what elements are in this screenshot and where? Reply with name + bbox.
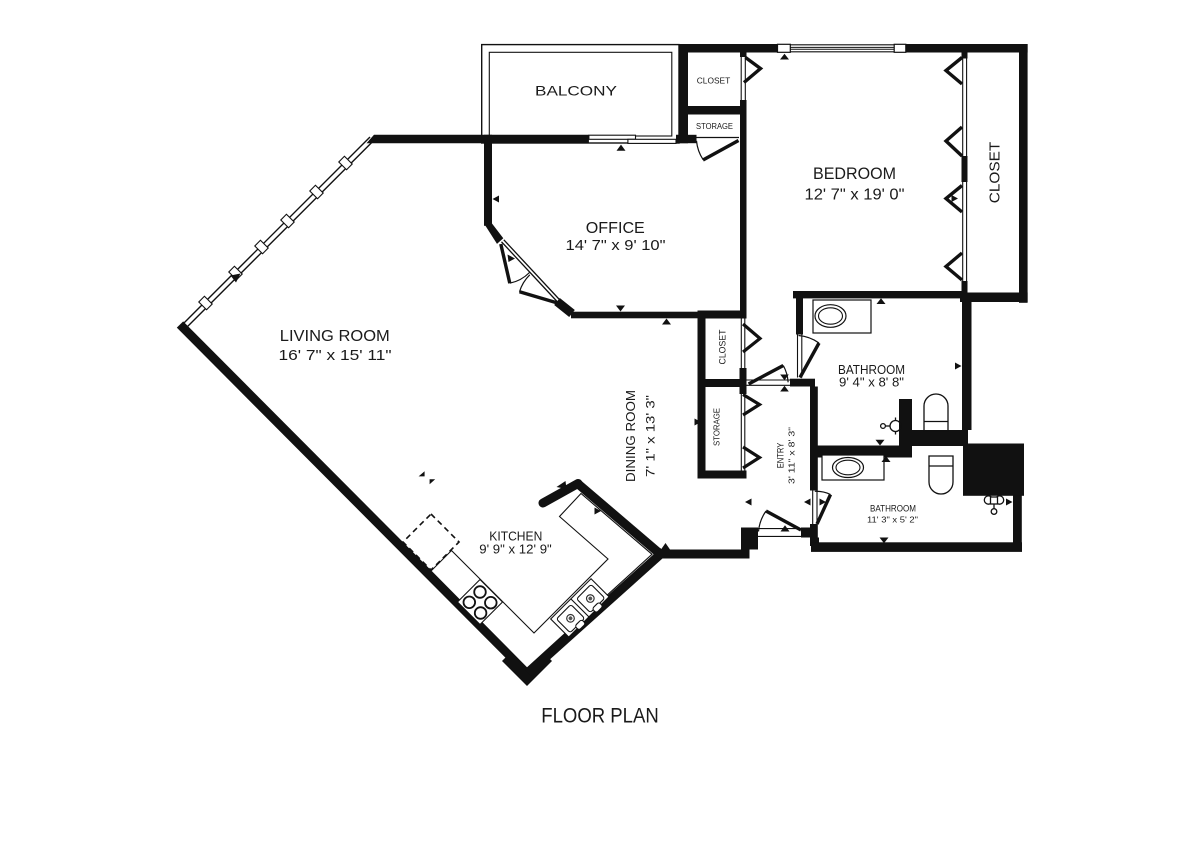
svg-text:3' 11" x 8' 3": 3' 11" x 8' 3" [787,427,797,484]
svg-text:16' 7" x 15' 11": 16' 7" x 15' 11" [279,347,392,364]
svg-text:BEDROOM: BEDROOM [813,165,896,183]
svg-text:OFFICE: OFFICE [586,220,645,237]
svg-text:14' 7" x 9' 10": 14' 7" x 9' 10" [566,237,666,254]
svg-text:9' 4" x 8' 8": 9' 4" x 8' 8" [839,376,904,390]
svg-text:11' 3" x 5' 2": 11' 3" x 5' 2" [867,515,918,525]
svg-text:STORAGE: STORAGE [696,122,733,131]
svg-text:12' 7" x 19' 0": 12' 7" x 19' 0" [805,187,905,204]
svg-text:7' 1" x 13' 3": 7' 1" x 13' 3" [646,395,658,477]
svg-text:KITCHEN: KITCHEN [489,529,542,544]
svg-text:CLOSET: CLOSET [697,76,731,86]
svg-text:LIVING ROOM: LIVING ROOM [280,328,390,345]
svg-text:CLOSET: CLOSET [987,142,1004,204]
svg-text:STORAGE: STORAGE [712,408,722,446]
svg-text:9' 9" x 12' 9": 9' 9" x 12' 9" [479,543,552,557]
svg-text:BATHROOM: BATHROOM [870,504,916,514]
svg-text:ENTRY: ENTRY [776,443,786,469]
svg-text:DINING ROOM: DINING ROOM [624,390,638,482]
svg-text:BALCONY: BALCONY [535,83,618,99]
svg-text:FLOOR PLAN: FLOOR PLAN [541,704,659,728]
svg-text:CLOSET: CLOSET [718,329,728,364]
